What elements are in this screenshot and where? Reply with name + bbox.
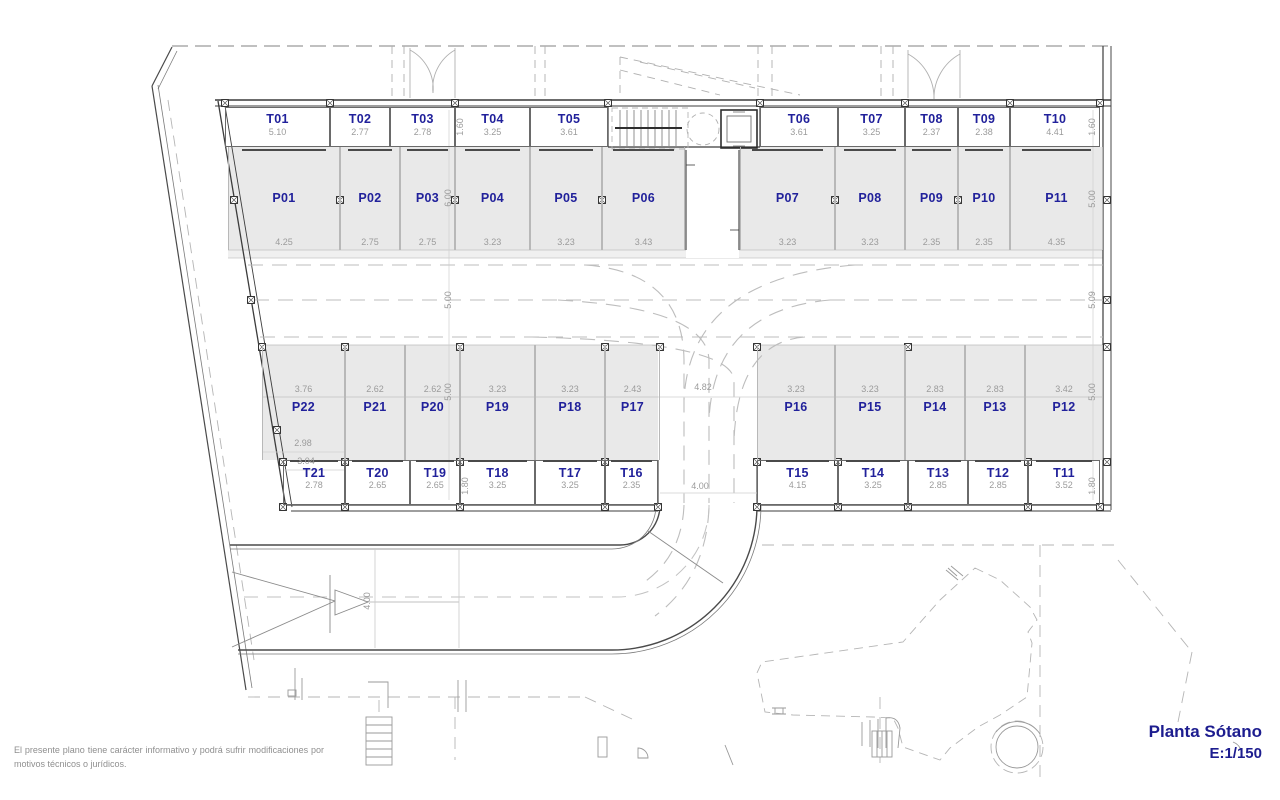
title-block: Planta Sótano E:1/150 <box>1149 722 1262 762</box>
pool-outline <box>757 568 1037 760</box>
ramp-circle <box>687 113 719 145</box>
parking-bands <box>228 147 1103 460</box>
site-details <box>248 545 1241 783</box>
disclaimer-text: El presente plano tiene carácter informa… <box>14 744 324 772</box>
floor-plan-canvas: { "title": {"name": "Planta Sótano", "sc… <box>0 0 1280 800</box>
ramp-arrow <box>232 572 459 647</box>
plan-title: Planta Sótano <box>1149 722 1262 742</box>
stair-core <box>608 107 760 149</box>
plan-scale: E:1/150 <box>1149 745 1262 762</box>
ramp-road <box>230 505 761 654</box>
pool-steps-icon <box>862 718 900 748</box>
elevator-icon <box>721 110 757 148</box>
plan-linework <box>0 0 1280 800</box>
upper-floor-projection <box>392 46 960 100</box>
pool-ladder-icon <box>772 566 963 714</box>
disclaimer-line1: El presente plano tiene carácter informa… <box>14 745 246 755</box>
spa-circle-icon <box>991 721 1043 773</box>
misc-site-marks <box>288 668 1241 765</box>
